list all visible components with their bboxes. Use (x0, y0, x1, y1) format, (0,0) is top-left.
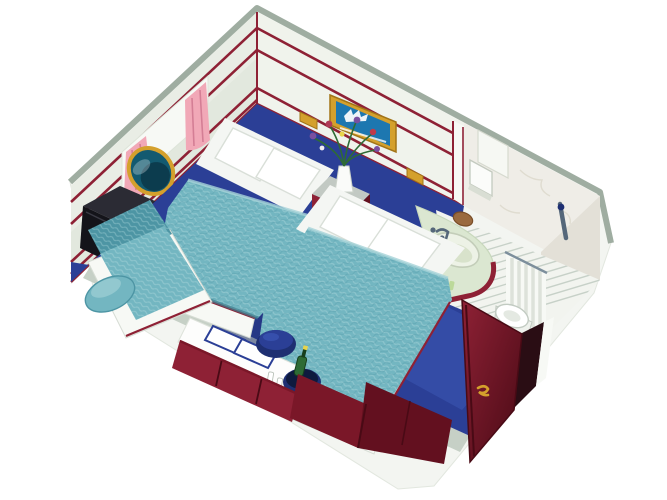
vanity-stool (256, 330, 296, 358)
cabin-illustration: Cruise ship inside stateroom cutaway wit… (0, 0, 667, 500)
shower-head (558, 204, 565, 211)
cabin-cutaway-svg: Cruise ship inside stateroom cutaway wit… (0, 0, 667, 500)
stool-highlight (263, 333, 279, 341)
partition-top-edge (452, 120, 464, 206)
